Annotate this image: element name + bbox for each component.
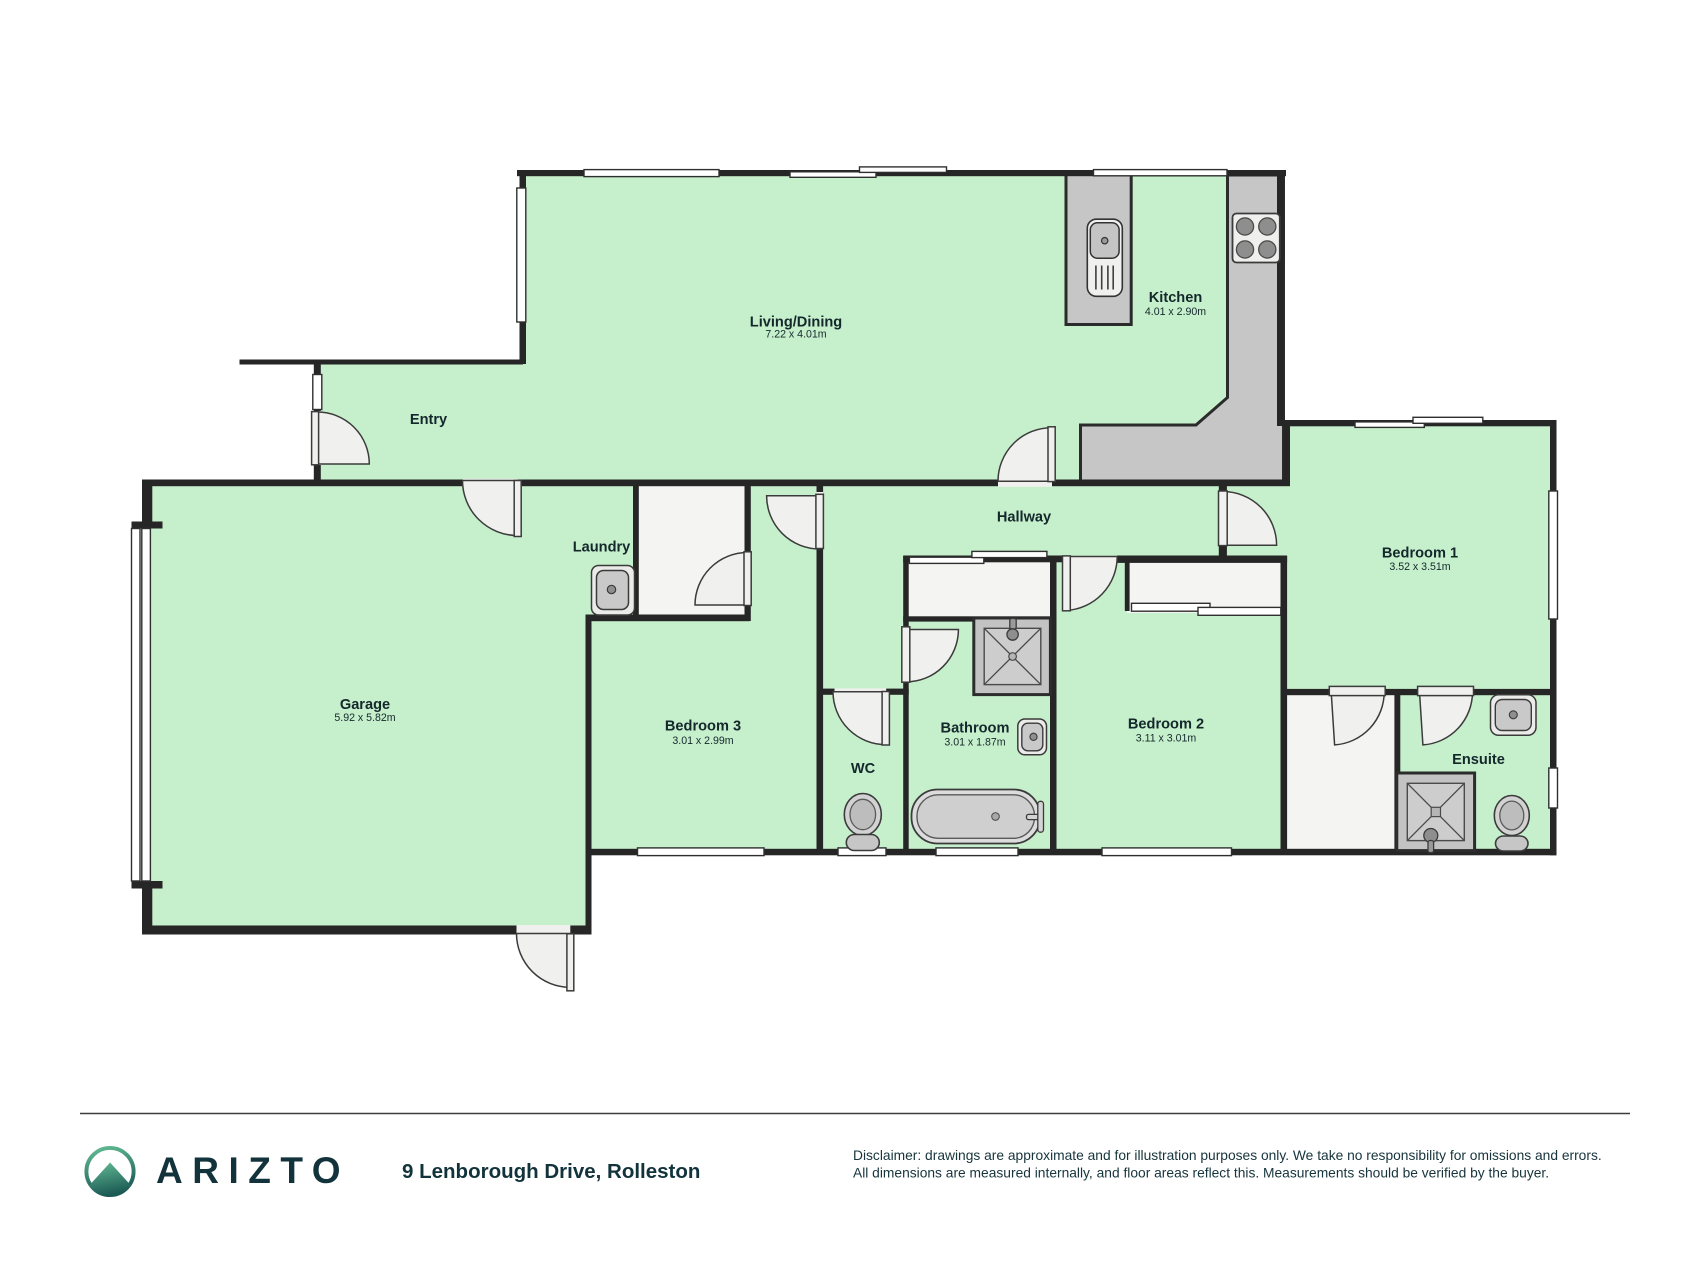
svg-text:Bedroom 2: Bedroom 2 (1128, 717, 1204, 733)
svg-text:3.52 x 3.51m: 3.52 x 3.51m (1389, 561, 1450, 573)
svg-text:Bathroom: Bathroom (941, 721, 1010, 737)
svg-text:3.01 x 2.99m: 3.01 x 2.99m (672, 735, 733, 747)
svg-text:7.22 x 4.01m: 7.22 x 4.01m (765, 329, 826, 341)
svg-text:Entry: Entry (410, 412, 448, 428)
svg-text:Hallway: Hallway (997, 510, 1052, 526)
svg-text:ARIZTO: ARIZTO (156, 1150, 350, 1191)
svg-text:All dimensions are measured in: All dimensions are measured internally, … (853, 1166, 1549, 1181)
svg-text:Disclaimer: drawings are appro: Disclaimer: drawings are approximate and… (853, 1148, 1602, 1163)
svg-text:Laundry: Laundry (573, 540, 631, 556)
svg-text:9 Lenborough Drive, Rolleston: 9 Lenborough Drive, Rolleston (402, 1160, 700, 1183)
svg-text:3.01 x 1.87m: 3.01 x 1.87m (944, 737, 1005, 749)
svg-text:Bedroom 3: Bedroom 3 (665, 719, 741, 735)
svg-text:Ensuite: Ensuite (1452, 752, 1505, 768)
svg-text:5.92 x 5.82m: 5.92 x 5.82m (334, 712, 395, 724)
svg-text:WC: WC (851, 761, 876, 777)
svg-text:Bedroom 1: Bedroom 1 (1382, 546, 1458, 562)
svg-text:Kitchen: Kitchen (1149, 290, 1203, 306)
svg-text:4.01 x 2.90m: 4.01 x 2.90m (1145, 306, 1206, 318)
svg-text:3.11 x 3.01m: 3.11 x 3.01m (1136, 733, 1197, 745)
svg-text:Garage: Garage (340, 697, 390, 713)
